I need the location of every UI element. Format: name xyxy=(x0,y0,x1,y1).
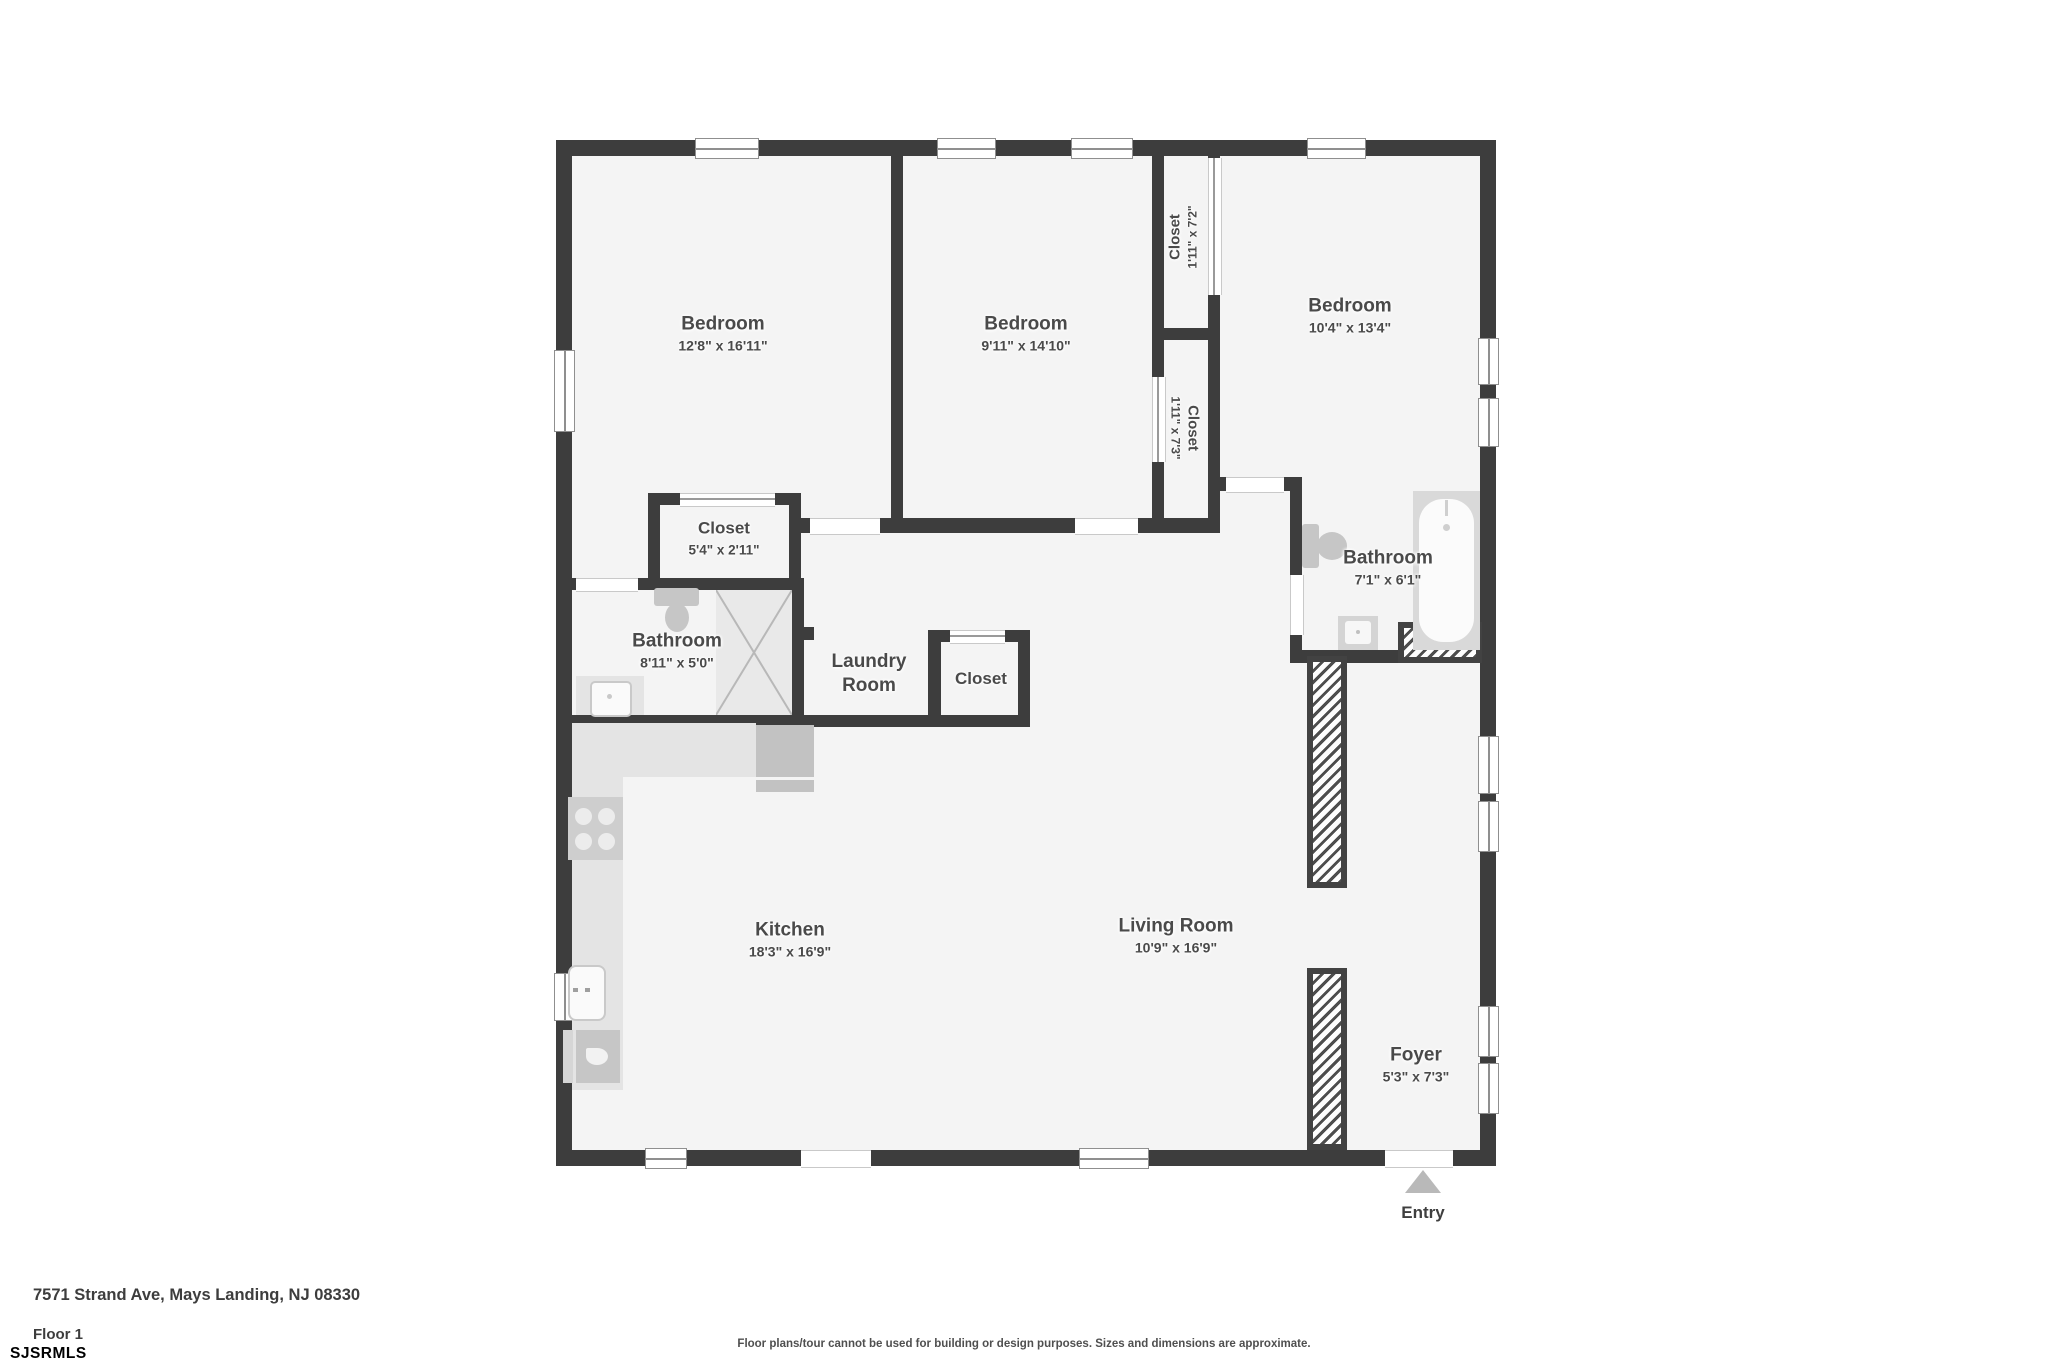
property-address: 7571 Strand Ave, Mays Landing, NJ 08330 xyxy=(33,1286,360,1305)
room-name: Bedroom xyxy=(678,313,767,337)
half-wall-hatch-upper xyxy=(1307,656,1347,888)
room-name: Closet xyxy=(688,517,759,541)
window-bedroom2-top-1 xyxy=(937,138,996,159)
room-name: Bedroom xyxy=(981,313,1070,337)
room-name: Closet xyxy=(1184,396,1203,459)
room-label-bedroom-2: Bedroom 9'11" x 14'10" xyxy=(981,313,1070,356)
room-dims: 9'11" x 14'10" xyxy=(981,337,1070,356)
room-label-living-room: Living Room 10'9" x 16'9" xyxy=(1118,915,1233,958)
entry-label: Entry xyxy=(1401,1203,1444,1223)
stove xyxy=(568,797,623,860)
room-label-foyer: Foyer 5'3" x 7'3" xyxy=(1383,1044,1450,1087)
wall-bedroom-divider xyxy=(891,140,903,533)
entry-arrow-icon xyxy=(1405,1170,1441,1193)
door-opening-bathroom2 xyxy=(1290,575,1304,635)
door-opening-bedroom2 xyxy=(1075,518,1138,535)
room-name: Bathroom xyxy=(1343,547,1433,571)
room-name: Kitchen xyxy=(749,919,831,943)
window-bedroom3-right-1 xyxy=(1478,338,1499,385)
room-dims: 5'3" x 7'3" xyxy=(1383,1068,1450,1087)
window-foyer-right-1 xyxy=(1478,1006,1499,1057)
stove-burner-2 xyxy=(598,808,615,825)
room-dims: 8'11" x 5'0" xyxy=(632,654,722,673)
wall-laundry-right xyxy=(928,630,941,727)
room-label-closet-54: Closet 5'4" x 2'11" xyxy=(688,517,759,560)
stove-burner-3 xyxy=(575,833,592,850)
shower xyxy=(716,590,792,715)
window-bedroom2-top-2 xyxy=(1071,138,1133,159)
kitchen-counter-top xyxy=(572,723,756,777)
room-dims: 10'4" x 13'4" xyxy=(1308,319,1391,338)
room-name: Closet xyxy=(1166,205,1185,268)
room-dims: 10'9" x 16'9" xyxy=(1118,939,1233,958)
shower-x-icon xyxy=(716,590,792,715)
door-opening-bathroom1 xyxy=(576,578,638,592)
room-name: Room xyxy=(832,674,907,698)
room-label-bathroom-1: Bathroom 8'11" x 5'0" xyxy=(632,630,722,673)
door-opening-closet-sm xyxy=(950,630,1005,644)
room-dims: 7'1" x 6'1" xyxy=(1343,571,1433,590)
sink2-drain-dot xyxy=(1356,630,1360,634)
kitchen-faucet-dot-2 xyxy=(585,988,590,992)
door-opening-closet54 xyxy=(680,493,775,507)
room-dims: 1'11" x 7'3" xyxy=(1168,396,1184,459)
room-dims: 18'3" x 16'9" xyxy=(749,943,831,962)
room-label-closet-sm: Closet xyxy=(955,667,1007,691)
bathtub-faucet-line xyxy=(1445,500,1448,516)
room-name: Living Room xyxy=(1118,915,1233,939)
room-label-closet-mid: Closet 1'11" x 7'3" xyxy=(1168,396,1203,459)
room-dims: 5'4" x 2'11" xyxy=(688,541,759,560)
door-opening-kitchen xyxy=(801,1150,871,1168)
room-name: Laundry xyxy=(832,650,907,674)
bathtub-faucet-dot xyxy=(1443,524,1450,531)
floor-label: Floor 1 xyxy=(33,1326,83,1343)
wall-closet-sm-right xyxy=(1018,630,1030,727)
window-hall-right-1 xyxy=(1478,736,1499,794)
window-hall-right-2 xyxy=(1478,801,1499,852)
wall-closet54-right xyxy=(789,493,801,590)
utility-tub-wall-strip xyxy=(563,1030,573,1083)
mls-watermark: SJSRMLS xyxy=(10,1345,87,1363)
window-living-bottom xyxy=(1079,1148,1149,1169)
door-opening-bedroom3 xyxy=(1226,477,1284,493)
room-label-bedroom-3: Bedroom 10'4" x 13'4" xyxy=(1308,295,1391,338)
utility-tub-basin xyxy=(586,1048,608,1065)
kitchen-faucet-dot-1 xyxy=(573,988,578,992)
closet-sm-slider-line xyxy=(950,635,1005,637)
room-dims: 12'8" x 16'11" xyxy=(678,337,767,356)
sink-drain-dot xyxy=(607,694,612,699)
window-bedroom3-right-2 xyxy=(1478,398,1499,447)
refrigerator-door xyxy=(756,780,814,792)
wall-outer-bottom xyxy=(556,1150,1496,1166)
window-bedroom1-top xyxy=(695,138,759,159)
wall-bathroom1-right xyxy=(792,578,804,727)
room-label-bedroom-1: Bedroom 12'8" x 16'11" xyxy=(678,313,767,356)
wall-closet54-left xyxy=(648,493,660,590)
sink-kitchen xyxy=(568,965,606,1021)
room-name: Bathroom xyxy=(632,630,722,654)
wall-closet-column-divider xyxy=(1152,328,1220,340)
stove-burner-4 xyxy=(598,833,615,850)
window-foyer-right-2 xyxy=(1478,1063,1499,1114)
door-opening-entry xyxy=(1385,1150,1453,1168)
room-label-kitchen: Kitchen 18'3" x 16'9" xyxy=(749,919,831,962)
toilet-bowl xyxy=(665,603,689,632)
wall-bathroom2-left xyxy=(1290,477,1302,663)
refrigerator xyxy=(756,725,814,777)
closet-top-slider-line xyxy=(1213,158,1215,295)
sink-bathroom1 xyxy=(590,681,632,717)
room-name: Bedroom xyxy=(1308,295,1391,319)
room-dims: 1'11" x 7'2" xyxy=(1185,205,1201,268)
room-name: Foyer xyxy=(1383,1044,1450,1068)
room-label-closet-top: Closet 1'11" x 7'2" xyxy=(1166,205,1201,268)
half-wall-hatch-lower xyxy=(1307,968,1347,1150)
disclaimer-text: Floor plans/tour cannot be used for buil… xyxy=(737,1338,1310,1350)
door-opening-closet-mid xyxy=(1152,377,1166,462)
room-name: Closet xyxy=(955,667,1007,691)
stove-burner-1 xyxy=(575,808,592,825)
window-bedroom1-left xyxy=(554,350,575,432)
door-opening-bedroom1 xyxy=(810,518,880,535)
floorplan-page: Bedroom 12'8" x 16'11" Bedroom 9'11" x 1… xyxy=(0,0,2048,1365)
window-kitchen-bottom xyxy=(645,1148,687,1169)
window-bedroom3-top xyxy=(1307,138,1366,159)
room-label-laundry: Laundry Room xyxy=(832,650,907,698)
wall-door-jamb xyxy=(804,627,814,640)
door-opening-closet-top xyxy=(1208,158,1222,295)
closet54-slider-line xyxy=(680,498,775,500)
room-label-bathroom-2: Bathroom 7'1" x 6'1" xyxy=(1343,547,1433,590)
closet-mid-slider-line xyxy=(1157,377,1159,462)
